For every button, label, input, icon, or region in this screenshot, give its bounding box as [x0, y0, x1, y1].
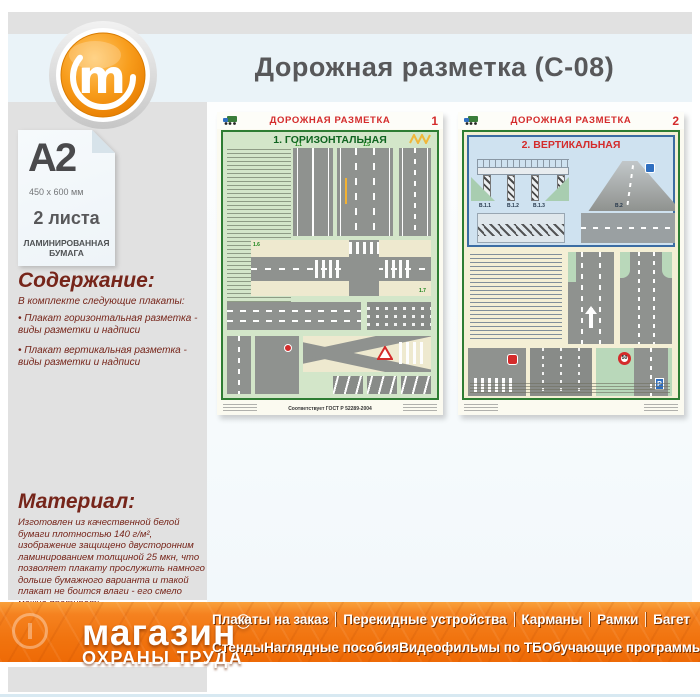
poster2-green-panel: 2. ВЕРТИКАЛЬНАЯ В.1.1 В.1.2 В.1.3 В.2 — [462, 130, 680, 400]
paper-type-label: ЛАМИНИРОВАННАЯ БУМАГА — [18, 238, 115, 258]
safety-sign-icon — [12, 613, 48, 649]
page-title: Дорожная разметка (С-08) — [207, 52, 662, 83]
contents-bullet-2: • Плакат вертикальная разметка - виды ра… — [18, 345, 206, 369]
stop-sign-icon — [284, 344, 292, 352]
poster1-title: ДОРОЖНАЯ РАЗМЕТКА — [217, 115, 443, 126]
menu-item-posters[interactable]: Плакаты на заказ — [212, 612, 329, 627]
logo-letter: m — [78, 50, 126, 104]
road-graphic — [367, 302, 431, 330]
format-label: A2 — [28, 136, 75, 181]
product-page: Дорожная разметка (С-08) m — [0, 0, 700, 700]
poster1-green-panel: 1. ГОРИЗОНТАЛЬНАЯ 1.1 1.5 1.6 1.7 — [221, 130, 439, 400]
site-logo[interactable]: m — [47, 19, 159, 131]
crosswalk-graphic — [385, 260, 411, 278]
sheets-label: 2 листа — [18, 208, 115, 229]
poster1-section-title: 1. ГОРИЗОНТАЛЬНАЯ — [223, 134, 437, 146]
marking-label: В.2 — [615, 203, 623, 209]
format-badge: A2 450 x 600 мм 2 листа ЛАМИНИРОВАННАЯ Б… — [18, 130, 115, 266]
poster2-number: 2 — [672, 114, 679, 128]
footer-menu-row-1: Плакаты на заказ Перекидные устройства К… — [212, 612, 690, 627]
menu-item-training-programs[interactable]: Обучающие программы — [542, 640, 700, 655]
page-bottom-edge — [0, 694, 700, 697]
road-graphic — [568, 252, 614, 344]
road-graphic — [399, 148, 431, 236]
bridge-pillar-graphic — [507, 175, 515, 201]
menu-divider — [335, 612, 336, 627]
junction-graphic — [303, 336, 431, 372]
crosswalk-graphic — [349, 242, 379, 254]
marking-label: 1.5 — [363, 142, 370, 148]
menu-divider — [589, 612, 590, 627]
contents-heading: Содержание: — [18, 269, 155, 293]
footer-menu: Плакаты на заказ Перекидные устройства К… — [212, 602, 690, 662]
marking-label: В.1.1 — [479, 203, 491, 209]
bridge-graphic — [477, 213, 565, 243]
verge-graphic — [662, 252, 672, 278]
bridge-deck-graphic — [477, 167, 569, 175]
material-heading: Материал: — [18, 490, 135, 514]
poster2-credit-left — [464, 404, 498, 411]
material-text: Изготовлен из качественной белой бумаги … — [18, 517, 210, 609]
bridge-pillar-graphic — [531, 175, 539, 201]
poster2-caption-lines — [470, 383, 670, 395]
crosswalk-graphic — [399, 342, 425, 364]
intersection-graphic — [251, 240, 431, 296]
verge-graphic — [568, 252, 576, 282]
yellow-zigzag-marking — [409, 134, 433, 144]
marking-label: В.1.2 — [507, 203, 519, 209]
poster1-header: ДОРОЖНАЯ РАЗМЕТКА 1 — [217, 112, 443, 129]
marking-label: 1.7 — [419, 288, 426, 294]
menu-item-stands[interactable]: Стенды — [212, 640, 264, 655]
marking-label: В.1.3 — [533, 203, 545, 209]
contents-bullet-1: • Плакат горизонтальная разметка - виды … — [18, 313, 206, 337]
menu-divider — [645, 612, 646, 627]
poster2-blue-panel: 2. ВЕРТИКАЛЬНАЯ В.1.1 В.1.2 В.1.3 В.2 — [467, 135, 675, 247]
verge-graphic — [620, 252, 630, 278]
poster-vertical-marking: ДОРОЖНАЯ РАЗМЕТКА 2 2. ВЕРТИКАЛЬНАЯ В.1.… — [458, 112, 684, 415]
lane-arrow-graphic — [589, 308, 593, 328]
road-graphic — [581, 213, 675, 243]
chevron-marking-graphic — [401, 376, 431, 394]
road-graphic — [293, 148, 333, 236]
chevron-marking-graphic — [367, 376, 397, 394]
contents-intro: В комплекте следующие плакаты: — [18, 296, 200, 308]
give-way-sign-icon — [377, 346, 393, 360]
poster2-section-title: 2. ВЕРТИКАЛЬНАЯ — [469, 139, 673, 151]
marking-label: 1.1 — [295, 142, 302, 148]
bottom-gray-block — [8, 667, 207, 692]
poster-horizontal-marking: ДОРОЖНАЯ РАЗМЕТКА 1 1. ГОРИЗОНТАЛЬНАЯ 1.… — [217, 112, 443, 415]
size-label: 450 x 600 мм — [29, 187, 83, 197]
keep-right-sign-icon — [645, 163, 655, 173]
road-graphic — [227, 336, 251, 394]
menu-divider — [514, 612, 515, 627]
menu-item-flip-systems[interactable]: Перекидные устройства — [343, 612, 506, 627]
road-graphic — [337, 148, 393, 236]
menu-item-safety-videos[interactable]: Видеофильмы по ТБ — [399, 640, 542, 655]
road-graphic — [620, 252, 672, 344]
bridge-railing-graphic — [477, 159, 569, 167]
poster2-text-column — [470, 254, 562, 340]
paper-fold-corner-icon — [92, 130, 115, 153]
road-graphic — [255, 336, 299, 394]
menu-item-baguette[interactable]: Багет — [653, 612, 690, 627]
site-logo-icon: m — [47, 19, 159, 131]
stop-sign-icon — [507, 354, 518, 365]
poster2-title: ДОРОЖНАЯ РАЗМЕТКА — [458, 115, 684, 126]
poster1-number: 1 — [431, 114, 438, 128]
marking-label: 1.6 — [253, 242, 260, 248]
road-graphic — [227, 302, 361, 330]
poster1-credit-right — [403, 404, 437, 411]
poster2-credit-right — [644, 404, 678, 411]
chevron-marking-graphic — [333, 376, 363, 394]
footer-menu-row-2: Стенды Наглядные пособия Видеофильмы по … — [212, 640, 690, 655]
menu-item-frames[interactable]: Рамки — [597, 612, 638, 627]
menu-item-visual-aids[interactable]: Наглядные пособия — [264, 640, 399, 655]
menu-item-pockets[interactable]: Карманы — [521, 612, 582, 627]
poster2-header: ДОРОЖНАЯ РАЗМЕТКА 2 — [458, 112, 684, 129]
speed-limit-sign-icon: 50 — [618, 352, 631, 365]
crosswalk-graphic — [315, 260, 341, 278]
